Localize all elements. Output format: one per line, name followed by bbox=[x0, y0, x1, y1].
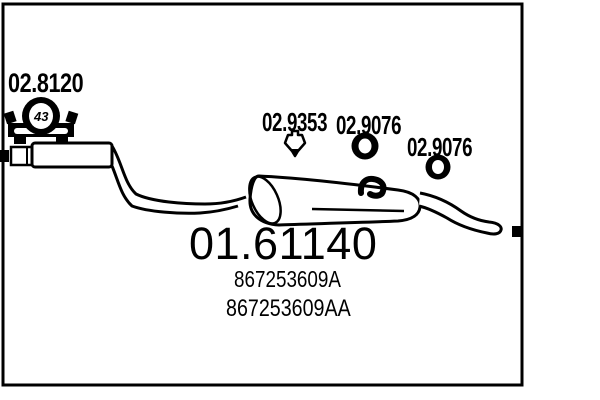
inlet-pipe-drawing bbox=[11, 143, 246, 213]
callout-code-hanger: 02.9353 bbox=[262, 109, 327, 135]
clamp-icon: 43 bbox=[4, 97, 79, 144]
callout-code-clamp: 02.8120 bbox=[8, 70, 83, 97]
oem-number-2: 867253609AA bbox=[226, 297, 351, 321]
left-connector-marker bbox=[0, 150, 9, 162]
diagram-line-art: 43 bbox=[0, 0, 600, 400]
callout-code-gasket-1: 02.9076 bbox=[336, 112, 401, 138]
main-part-code: 01.61140 bbox=[189, 221, 377, 266]
oem-number-1: 867253609A bbox=[234, 268, 341, 291]
tailpipe-drawing bbox=[419, 193, 501, 234]
right-connector-marker bbox=[512, 226, 523, 237]
exhaust-part-diagram: 43 bbox=[0, 0, 600, 400]
callout-code-gasket-2: 02.9076 bbox=[407, 134, 472, 160]
clamp-size-text: 43 bbox=[33, 109, 49, 124]
